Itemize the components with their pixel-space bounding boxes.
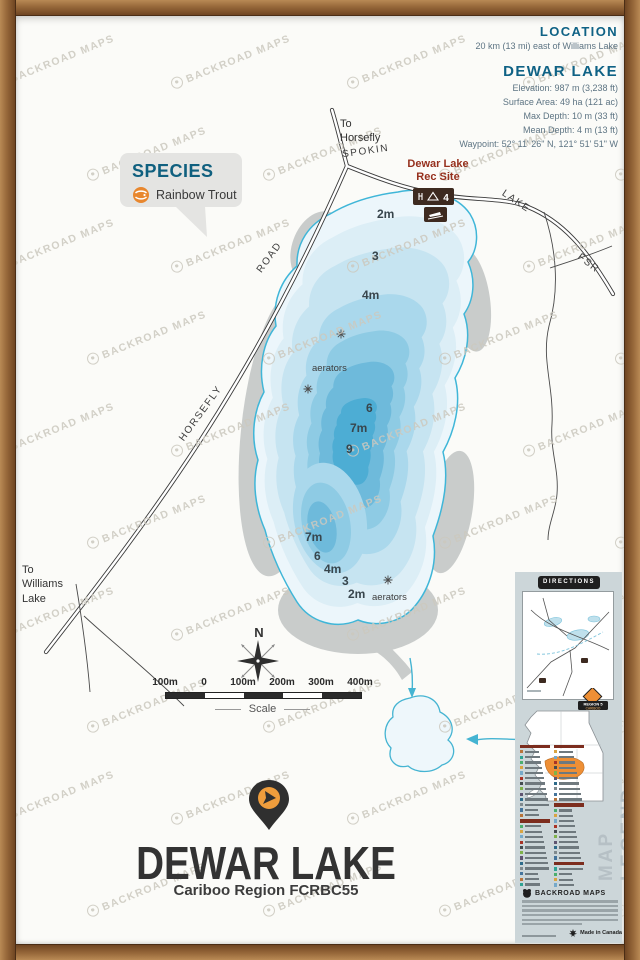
wood-frame-left [0, 0, 16, 960]
depth-label: 3 [372, 249, 379, 263]
stat-surface-area: Surface Area: 49 ha (121 ac) [459, 96, 618, 110]
svg-text:CARIBOO: CARIBOO [586, 706, 601, 710]
fine-print [522, 900, 622, 925]
scale-tick: 0 [201, 677, 207, 688]
rec-site-badge: 4 [413, 188, 454, 205]
pond [385, 696, 454, 772]
legend-panel: DIRECTIONS REGION 5 CAR [515, 572, 622, 943]
scale-tick: 200m [269, 677, 295, 688]
depth-label: 2m [348, 587, 365, 601]
legend-items [520, 743, 598, 889]
scale-caption: Scale [165, 703, 360, 715]
compass-north-label: N [251, 625, 267, 640]
aerators-label: aerators [372, 592, 407, 603]
made-in-label: Made in Canada [580, 930, 622, 936]
stat-max-depth: Max Depth: 10 m (33 ft) [459, 110, 618, 124]
species-callout: SPECIES Rainbow Trout [120, 153, 242, 207]
species-name: Rainbow Trout [156, 188, 237, 202]
depth-label: 3 [342, 574, 349, 588]
lake-stats: Elevation: 987 m (3,238 ft) Surface Area… [459, 82, 618, 152]
depth-label: 4m [362, 288, 379, 302]
scale-bar [165, 692, 362, 699]
wood-frame-right [624, 0, 640, 960]
depth-label: 6 [314, 549, 321, 563]
region-badge: REGION 5 CARIBOO [577, 688, 609, 716]
scale-tick: 100m [152, 677, 178, 688]
depth-label: 2m [377, 207, 394, 221]
bear-logo-icon [522, 888, 532, 898]
to-williams-lake-label: To Williams Lake [22, 563, 63, 606]
directions-inset-map [522, 591, 614, 700]
location-heading: LOCATION [459, 24, 618, 39]
compass-rose [237, 640, 279, 682]
stat-mean-depth: Mean Depth: 4 m (13 ft) [459, 124, 618, 138]
depth-label: 7m [305, 530, 322, 544]
stat-waypoint: Waypoint: 52° 11' 26" N, 121° 51' 51" W [459, 138, 618, 152]
to-horsefly-label: To Horsefly [340, 118, 380, 146]
map-subtitle: Cariboo Region FCRBC55 [66, 882, 466, 899]
aerators-label: aerators [312, 363, 347, 374]
lake-info-block: LOCATION 20 km (13 mi) east of Williams … [459, 24, 618, 152]
framed-lake-map: { "watermark": { "text": "BACKROAD MAPS"… [0, 0, 640, 960]
depth-label: 4m [324, 562, 341, 576]
brand-name: BACKROAD MAPS [535, 890, 606, 897]
wood-frame-top [0, 0, 640, 16]
scale-tick: 300m [308, 677, 334, 688]
site-count: 4 [443, 193, 449, 204]
species-callout-tail [175, 206, 215, 240]
fish-icon [132, 186, 150, 204]
depth-label: 9 [346, 442, 353, 456]
scale-tick: 100m [230, 677, 256, 688]
location-description: 20 km (13 mi) east of Williams Lake [459, 41, 618, 51]
scale-tick: 400m [347, 677, 373, 688]
depth-label: 7m [350, 421, 367, 435]
map-pin-logo [243, 778, 295, 834]
depth-label: 6 [366, 401, 373, 415]
maple-leaf-icon [569, 929, 577, 937]
stat-elevation: Elevation: 987 m (3,238 ft) [459, 82, 618, 96]
brand-footer: BACKROAD MAPS Made in Canada [522, 888, 622, 937]
directions-heading: DIRECTIONS [538, 576, 600, 589]
lake-name-heading: DEWAR LAKE [459, 63, 618, 80]
wood-frame-bottom [0, 944, 640, 960]
boat-launch-badge [424, 207, 447, 222]
rec-site-label: Dewar Lake Rec Site [393, 158, 483, 183]
species-heading: SPECIES [132, 161, 242, 182]
